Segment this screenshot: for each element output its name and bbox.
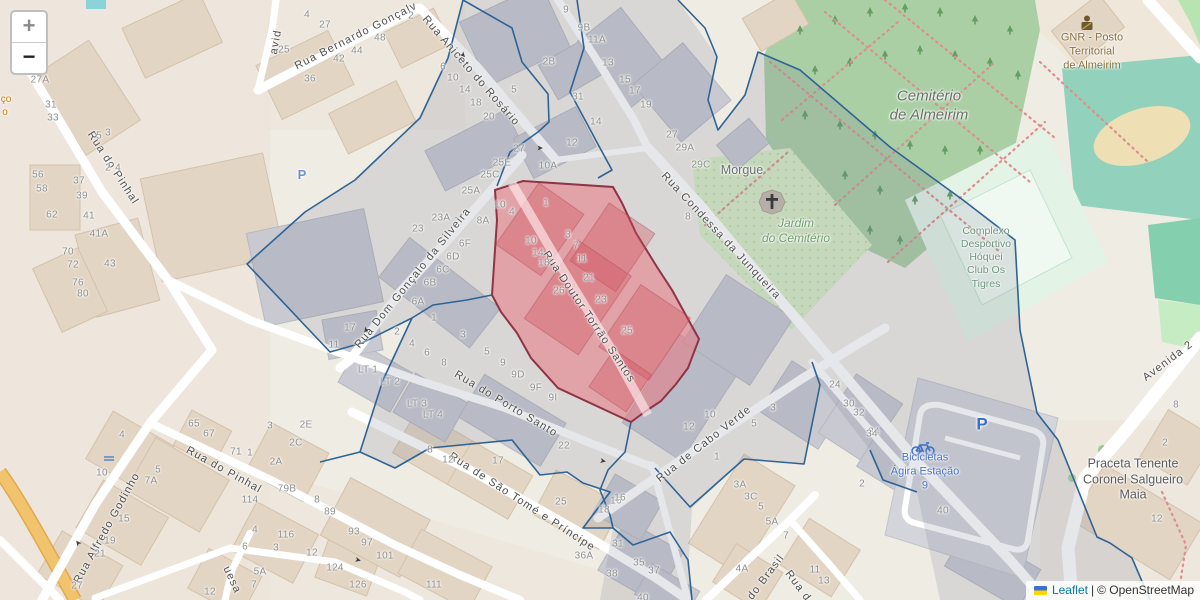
map-graphics xyxy=(0,0,1200,600)
map-canvas[interactable]: Rua do PinhalRua do PinhalRua Alfredo Go… xyxy=(0,0,1200,600)
zoom-control: + − xyxy=(10,10,48,75)
pool xyxy=(86,0,106,9)
attribution-bar: Leaflet | © OpenStreetMap xyxy=(1026,581,1200,600)
attribution-separator: | xyxy=(1091,581,1094,600)
ukraine-flag-icon xyxy=(1034,586,1047,595)
zoom-out-button[interactable]: − xyxy=(12,43,46,73)
cross-icon xyxy=(759,190,785,214)
osm-link[interactable]: © OpenStreetMap xyxy=(1097,581,1194,600)
zoom-in-button[interactable]: + xyxy=(12,12,46,43)
small-pitch xyxy=(1148,218,1200,305)
leaflet-link[interactable]: Leaflet xyxy=(1052,581,1088,600)
